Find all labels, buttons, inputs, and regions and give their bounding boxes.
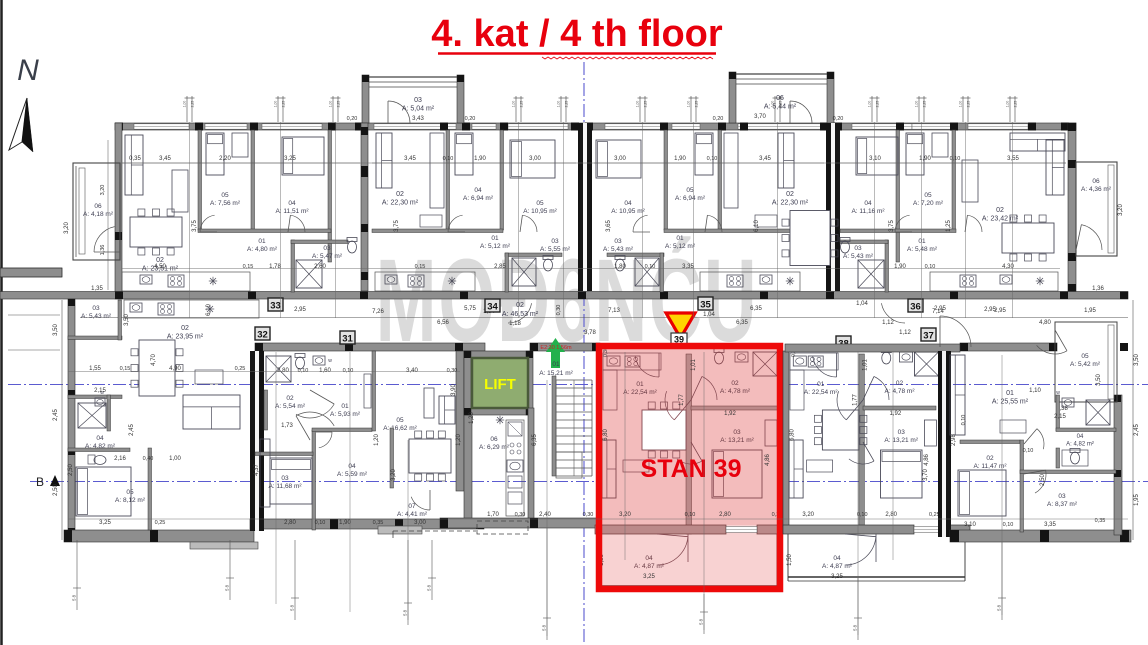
svg-text:2,25: 2,25 <box>520 101 524 108</box>
svg-text:1,90: 1,90 <box>474 156 486 162</box>
svg-text:A: 4,78 m²: A: 4,78 m² <box>720 388 751 395</box>
svg-text:1,01: 1,01 <box>691 359 697 371</box>
svg-text:31: 31 <box>342 334 353 345</box>
svg-text:5 8: 5 8 <box>853 624 858 630</box>
svg-text:03: 03 <box>1058 493 1066 500</box>
svg-text:1,00: 1,00 <box>1006 101 1010 108</box>
svg-text:0,10: 0,10 <box>343 368 354 374</box>
svg-text:1,90: 1,90 <box>339 520 351 526</box>
svg-text:A: 5,43 m²: A: 5,43 m² <box>843 253 874 260</box>
svg-text:A: 4,87 m²: A: 4,87 m² <box>634 563 665 570</box>
svg-text:3,65: 3,65 <box>606 220 612 232</box>
svg-text:02: 02 <box>996 207 1004 214</box>
svg-text:5 8: 5 8 <box>225 584 230 590</box>
svg-text:3,75: 3,75 <box>394 220 400 232</box>
svg-text:1,36: 1,36 <box>1092 286 1104 292</box>
svg-text:0,10: 0,10 <box>857 512 868 518</box>
svg-text:05: 05 <box>396 417 404 424</box>
svg-text:1,20: 1,20 <box>469 412 475 424</box>
svg-text:3,40: 3,40 <box>406 368 418 374</box>
svg-text:A: 5,12 m²: A: 5,12 m² <box>665 243 696 250</box>
svg-text:2,25: 2,25 <box>923 101 927 108</box>
svg-text:5 8: 5 8 <box>290 604 295 610</box>
svg-text:2,25: 2,25 <box>876 101 880 108</box>
svg-text:3,75: 3,75 <box>192 220 198 232</box>
svg-text:03: 03 <box>414 97 422 104</box>
svg-text:A: 6,94 m²: A: 6,94 m² <box>675 195 706 202</box>
svg-text:05: 05 <box>1081 353 1089 360</box>
svg-text:0,20: 0,20 <box>347 116 358 122</box>
svg-text:3,25: 3,25 <box>284 156 296 162</box>
svg-text:2,15: 2,15 <box>1054 414 1066 420</box>
svg-text:2,45: 2,45 <box>53 409 59 421</box>
svg-text:A: 11,68 m²: A: 11,68 m² <box>268 483 302 490</box>
svg-text:03: 03 <box>92 305 100 312</box>
svg-text:0,25: 0,25 <box>235 366 246 372</box>
svg-text:0,10: 0,10 <box>1003 522 1014 528</box>
svg-text:1,00: 1,00 <box>915 101 919 108</box>
svg-text:1,12: 1,12 <box>899 330 911 336</box>
svg-text:01: 01 <box>341 403 349 410</box>
svg-text:0,10: 0,10 <box>315 520 326 526</box>
svg-text:05: 05 <box>126 489 134 496</box>
svg-text:01: 01 <box>552 361 560 368</box>
svg-text:3,25: 3,25 <box>99 520 111 526</box>
svg-text:A: 5,59 m²: A: 5,59 m² <box>337 471 368 478</box>
svg-text:A: 5,43 m²: A: 5,43 m² <box>603 246 634 253</box>
svg-text:3,45: 3,45 <box>404 156 416 162</box>
svg-text:5 8: 5 8 <box>997 604 1002 610</box>
svg-text:03: 03 <box>854 245 862 252</box>
svg-text:B: B <box>36 475 44 489</box>
svg-text:03: 03 <box>281 475 289 482</box>
svg-text:1,50: 1,50 <box>787 554 793 566</box>
svg-text:01: 01 <box>676 235 684 242</box>
svg-text:2,25: 2,25 <box>1014 101 1018 108</box>
svg-text:04: 04 <box>864 200 872 207</box>
svg-text:2,95: 2,95 <box>294 307 306 313</box>
svg-text:35: 35 <box>700 300 711 311</box>
svg-text:1,90: 1,90 <box>674 156 686 162</box>
svg-text:1,00: 1,00 <box>636 101 640 108</box>
svg-text:w: w <box>1056 390 1060 396</box>
svg-text:02: 02 <box>181 325 189 332</box>
svg-text:0,10: 0,10 <box>298 368 309 374</box>
svg-text:04: 04 <box>1077 434 1084 440</box>
svg-text:3,43: 3,43 <box>412 116 424 122</box>
svg-text:A: 11,16 m²: A: 11,16 m² <box>851 208 885 215</box>
svg-text:1,00: 1,00 <box>687 101 691 108</box>
svg-text:1,90: 1,90 <box>894 264 906 270</box>
svg-text:A: 7,56 m²: A: 7,56 m² <box>210 200 241 207</box>
svg-text:3,20: 3,20 <box>1118 204 1124 216</box>
svg-text:A: 22,54 m²: A: 22,54 m² <box>623 389 657 396</box>
svg-text:A: 4,80 m²: A: 4,80 m² <box>247 246 278 253</box>
svg-text:A: 6,29 m²: A: 6,29 m² <box>479 444 510 451</box>
svg-text:3,50: 3,50 <box>1134 354 1140 366</box>
svg-text:2,40: 2,40 <box>539 512 551 518</box>
svg-text:0,15: 0,15 <box>120 366 131 372</box>
svg-text:A: 4,36 m²: A: 4,36 m² <box>1081 186 1112 193</box>
svg-text:2,80: 2,80 <box>719 512 731 518</box>
svg-text:1,20: 1,20 <box>456 434 462 446</box>
svg-text:1,10: 1,10 <box>1029 388 1041 394</box>
svg-text:A: 15,21 m²: A: 15,21 m² <box>539 370 573 377</box>
svg-text:3,20: 3,20 <box>802 512 814 518</box>
svg-text:A: 5,43 m²: A: 5,43 m² <box>81 313 112 320</box>
svg-text:A: 46,53 m²: A: 46,53 m² <box>502 311 539 318</box>
svg-text:2,25: 2,25 <box>282 101 286 108</box>
svg-text:1,36: 1,36 <box>100 245 106 256</box>
svg-text:A: 10,95 m²: A: 10,95 m² <box>611 208 645 215</box>
svg-text:03: 03 <box>323 245 331 252</box>
svg-text:2,50: 2,50 <box>68 464 74 476</box>
svg-text:A: 13,21 m²: A: 13,21 m² <box>884 437 918 444</box>
svg-text:02: 02 <box>396 191 404 198</box>
svg-text:6,80: 6,80 <box>789 429 795 441</box>
svg-text:2,25: 2,25 <box>191 101 195 108</box>
svg-text:A: 11,47 m²: A: 11,47 m² <box>973 463 1007 470</box>
svg-text:3,50: 3,50 <box>1096 374 1102 386</box>
svg-text:2,16: 2,16 <box>114 456 126 462</box>
svg-text:03: 03 <box>898 429 906 436</box>
svg-text:1,77: 1,77 <box>679 394 685 406</box>
svg-text:A: 8,12 m²: A: 8,12 m² <box>115 497 146 504</box>
svg-text:5 8: 5 8 <box>403 609 408 615</box>
svg-text:01: 01 <box>817 381 825 388</box>
svg-text:3,70: 3,70 <box>923 469 929 481</box>
svg-text:04: 04 <box>624 200 632 207</box>
svg-text:A: 22,54 m²: A: 22,54 m² <box>804 389 838 396</box>
svg-text:0,15: 0,15 <box>243 264 254 270</box>
svg-text:A: 6,94 m²: A: 6,94 m² <box>463 195 494 202</box>
svg-text:4,86: 4,86 <box>924 453 930 465</box>
svg-text:0,30: 0,30 <box>583 512 594 518</box>
svg-text:1,04: 1,04 <box>703 312 715 318</box>
svg-text:0,10: 0,10 <box>950 156 961 162</box>
svg-text:A: 4,78 m²: A: 4,78 m² <box>885 388 916 395</box>
svg-text:05: 05 <box>221 192 229 199</box>
svg-text:04: 04 <box>833 555 841 562</box>
svg-text:2,80: 2,80 <box>885 512 897 518</box>
svg-text:1,20: 1,20 <box>374 434 380 446</box>
svg-text:0,10: 0,10 <box>645 264 656 270</box>
svg-text:0,30: 0,30 <box>447 368 458 374</box>
svg-text:1,73: 1,73 <box>281 423 293 429</box>
svg-text:2,80: 2,80 <box>277 368 289 374</box>
svg-text:6,35: 6,35 <box>736 320 748 326</box>
svg-text:2,50: 2,50 <box>1040 474 1046 486</box>
svg-text:3,78: 3,78 <box>584 330 596 336</box>
svg-text:1,95: 1,95 <box>1134 494 1140 506</box>
svg-text:0,25: 0,25 <box>155 520 166 526</box>
svg-text:1,55: 1,55 <box>89 366 101 372</box>
svg-text:0,10: 0,10 <box>1023 448 1034 454</box>
svg-text:02: 02 <box>786 191 794 198</box>
svg-text:05: 05 <box>536 200 544 207</box>
svg-text:A: 4,18 m²: A: 4,18 m² <box>83 211 114 218</box>
svg-text:1,00: 1,00 <box>169 456 181 462</box>
svg-text:0,10: 0,10 <box>685 512 696 518</box>
svg-text:A: 10,95 m²: A: 10,95 m² <box>523 208 557 215</box>
svg-text:04: 04 <box>96 435 104 442</box>
svg-text:3,25: 3,25 <box>831 574 843 580</box>
svg-text:04: 04 <box>474 187 482 194</box>
svg-text:A: 4,87 m²: A: 4,87 m² <box>822 563 853 570</box>
svg-text:A: 13,21 m²: A: 13,21 m² <box>720 437 754 444</box>
svg-text:1,95: 1,95 <box>1084 308 1096 314</box>
svg-text:1,92: 1,92 <box>724 411 736 417</box>
svg-text:3,50: 3,50 <box>124 314 130 326</box>
svg-text:37: 37 <box>923 331 934 342</box>
svg-text:5,75: 5,75 <box>464 306 476 312</box>
svg-text:A: 25,55 m²: A: 25,55 m² <box>992 399 1029 406</box>
svg-text:2,95: 2,95 <box>994 308 1006 314</box>
svg-text:2,95: 2,95 <box>934 306 946 312</box>
svg-text:1,00: 1,00 <box>274 101 278 108</box>
svg-text:4,86: 4,86 <box>765 454 771 466</box>
svg-text:N: N <box>17 54 39 87</box>
svg-text:07: 07 <box>408 503 416 510</box>
svg-text:A: 23,95 m²: A: 23,95 m² <box>167 334 204 341</box>
svg-text:A: 22,30 m²: A: 22,30 m² <box>382 200 419 207</box>
svg-text:33: 33 <box>270 301 281 312</box>
svg-text:E2:30 1,56m: E2:30 1,56m <box>540 345 572 351</box>
svg-text:03: 03 <box>551 238 559 245</box>
svg-text:0,35: 0,35 <box>373 520 384 526</box>
svg-text:01: 01 <box>918 238 926 245</box>
svg-text:34: 34 <box>487 302 498 313</box>
svg-text:1,04: 1,04 <box>856 301 868 307</box>
svg-text:2,25: 2,25 <box>565 101 569 108</box>
svg-text:3,70: 3,70 <box>754 114 766 120</box>
svg-text:0,30: 0,30 <box>515 512 526 518</box>
svg-text:5 8: 5 8 <box>542 624 547 630</box>
svg-text:0,30: 0,30 <box>556 305 562 316</box>
svg-text:6,10: 6,10 <box>754 220 760 232</box>
svg-text:5 8: 5 8 <box>699 618 704 624</box>
svg-text:2,80: 2,80 <box>284 520 296 526</box>
svg-text:A: 5,42 m²: A: 5,42 m² <box>1070 361 1101 368</box>
svg-text:2,20: 2,20 <box>219 156 231 162</box>
svg-text:2,50: 2,50 <box>53 484 59 496</box>
svg-text:6,80: 6,80 <box>603 429 609 441</box>
svg-text:02: 02 <box>986 455 994 462</box>
svg-text:1,00: 1,00 <box>771 101 775 108</box>
svg-text:2,25: 2,25 <box>337 101 341 108</box>
svg-text:06: 06 <box>1092 178 1100 185</box>
svg-text:1,01: 1,01 <box>862 359 868 371</box>
svg-text:02: 02 <box>156 257 164 264</box>
svg-text:3,75: 3,75 <box>889 220 895 232</box>
svg-text:01: 01 <box>1006 390 1014 397</box>
svg-text:2,25: 2,25 <box>967 101 971 108</box>
svg-text:3,00: 3,00 <box>414 520 426 526</box>
svg-text:4,90: 4,90 <box>169 366 181 372</box>
svg-text:STAN 39: STAN 39 <box>641 455 742 483</box>
svg-text:6,56: 6,56 <box>437 320 449 326</box>
svg-text:05: 05 <box>924 192 932 199</box>
svg-text:A: 5,47 m²: A: 5,47 m² <box>312 253 343 260</box>
svg-text:05: 05 <box>686 187 694 194</box>
svg-text:1,00: 1,00 <box>512 101 516 108</box>
svg-text:4,70: 4,70 <box>151 354 157 366</box>
svg-text:3,35: 3,35 <box>682 264 694 270</box>
svg-text:3,00: 3,00 <box>614 156 626 162</box>
svg-text:3,90: 3,90 <box>451 384 457 396</box>
svg-text:2,25: 2,25 <box>779 101 783 108</box>
svg-text:0,20: 0,20 <box>465 116 476 122</box>
svg-text:A: 8,37 m²: A: 8,37 m² <box>1047 501 1078 508</box>
svg-text:1,00: 1,00 <box>183 101 187 108</box>
svg-text:5 8: 5 8 <box>72 594 77 600</box>
svg-text:A: 5,12 m²: A: 5,12 m² <box>480 243 511 250</box>
svg-text:02: 02 <box>286 395 294 402</box>
svg-text:1,78: 1,78 <box>269 264 281 270</box>
svg-text:0,10: 0,10 <box>925 264 936 270</box>
svg-text:01: 01 <box>491 235 499 242</box>
svg-text:01: 01 <box>636 381 644 388</box>
svg-text:36: 36 <box>910 302 921 313</box>
svg-text:2,85: 2,85 <box>494 264 506 270</box>
svg-text:0,20: 0,20 <box>713 116 724 122</box>
svg-text:0,15: 0,15 <box>415 264 426 270</box>
svg-text:1,00: 1,00 <box>329 101 333 108</box>
svg-text:3,20: 3,20 <box>64 222 70 234</box>
svg-text:3,50: 3,50 <box>53 324 59 336</box>
svg-text:7,13: 7,13 <box>608 308 620 314</box>
svg-text:A: 5,48 m²: A: 5,48 m² <box>907 246 938 253</box>
svg-text:2,25: 2,25 <box>695 101 699 108</box>
svg-text:04: 04 <box>645 555 653 562</box>
svg-text:06: 06 <box>490 436 498 443</box>
svg-text:03: 03 <box>614 238 622 245</box>
svg-text:2,45: 2,45 <box>129 424 135 436</box>
svg-text:0,20: 0,20 <box>833 116 844 122</box>
svg-text:01: 01 <box>258 238 266 245</box>
svg-text:w: w <box>328 358 332 364</box>
svg-text:A: 5,93 m²: A: 5,93 m² <box>330 411 361 418</box>
svg-text:3,35: 3,35 <box>1044 522 1056 528</box>
svg-text:1,80: 1,80 <box>614 264 626 270</box>
svg-text:02: 02 <box>896 380 904 387</box>
svg-text:3,20: 3,20 <box>100 185 106 196</box>
svg-text:06: 06 <box>94 203 102 210</box>
svg-text:3,20: 3,20 <box>391 469 397 481</box>
svg-text:A: 7,20 m²: A: 7,20 m² <box>913 200 944 207</box>
svg-text:5 8: 5 8 <box>427 584 432 590</box>
svg-text:3,10: 3,10 <box>869 156 881 162</box>
svg-text:0,10: 0,10 <box>707 156 718 162</box>
svg-text:1,00: 1,00 <box>868 101 872 108</box>
svg-text:3,25: 3,25 <box>643 574 655 580</box>
svg-text:1,00: 1,00 <box>557 101 561 108</box>
svg-text:A: 23,42 m²: A: 23,42 m² <box>982 216 1019 223</box>
svg-text:A: 4,82 m²: A: 4,82 m² <box>1066 442 1094 448</box>
svg-text:2,60: 2,60 <box>314 264 326 270</box>
svg-text:1,92: 1,92 <box>890 411 902 417</box>
svg-text:32: 32 <box>257 330 268 341</box>
svg-text:4,80: 4,80 <box>1039 320 1051 326</box>
svg-text:3,45: 3,45 <box>159 156 171 162</box>
svg-text:1,90: 1,90 <box>919 156 931 162</box>
svg-text:A: 5,54 m²: A: 5,54 m² <box>275 403 306 410</box>
svg-text:0,40: 0,40 <box>143 456 154 462</box>
svg-text:04: 04 <box>348 463 356 470</box>
svg-text:1,25: 1,25 <box>946 220 952 232</box>
svg-text:1,35: 1,35 <box>91 286 103 292</box>
svg-text:LIFT: LIFT <box>484 376 516 393</box>
svg-text:2,15: 2,15 <box>94 388 106 394</box>
svg-text:1,70: 1,70 <box>487 512 499 518</box>
svg-text:4,37: 4,37 <box>254 464 260 476</box>
svg-text:2,98: 2,98 <box>951 434 957 446</box>
svg-text:3,10: 3,10 <box>964 522 976 528</box>
svg-text:3,45: 3,45 <box>759 156 771 162</box>
svg-text:6,35: 6,35 <box>750 306 762 312</box>
svg-text:2,25: 2,25 <box>644 101 648 108</box>
svg-text:1,00: 1,00 <box>959 101 963 108</box>
svg-text:3,55: 3,55 <box>1007 156 1019 162</box>
svg-text:1,12: 1,12 <box>882 320 894 326</box>
svg-text:3,00: 3,00 <box>529 156 541 162</box>
svg-text:A: 4,41 m²: A: 4,41 m² <box>397 511 428 518</box>
svg-text:1,60: 1,60 <box>319 368 331 374</box>
svg-text:7,26: 7,26 <box>372 309 384 315</box>
svg-text:A: 5,55 m²: A: 5,55 m² <box>540 246 571 253</box>
svg-text:3,20: 3,20 <box>619 512 631 518</box>
svg-text:0,10: 0,10 <box>961 415 967 426</box>
svg-text:A: 16,62 m²: A: 16,62 m² <box>383 425 417 432</box>
svg-text:4,50: 4,50 <box>154 264 166 270</box>
svg-text:4. kat / 4 th floor: 4. kat / 4 th floor <box>431 13 723 55</box>
svg-text:02: 02 <box>516 302 524 309</box>
svg-text:6,35: 6,35 <box>532 434 538 446</box>
svg-text:2,45: 2,45 <box>1134 424 1140 436</box>
svg-text:04: 04 <box>288 200 296 207</box>
svg-text:0,10: 0,10 <box>443 156 454 162</box>
svg-text:02: 02 <box>731 380 739 387</box>
svg-text:0,35: 0,35 <box>129 156 141 162</box>
svg-text:03: 03 <box>733 429 741 436</box>
svg-text:1,77: 1,77 <box>852 393 858 405</box>
